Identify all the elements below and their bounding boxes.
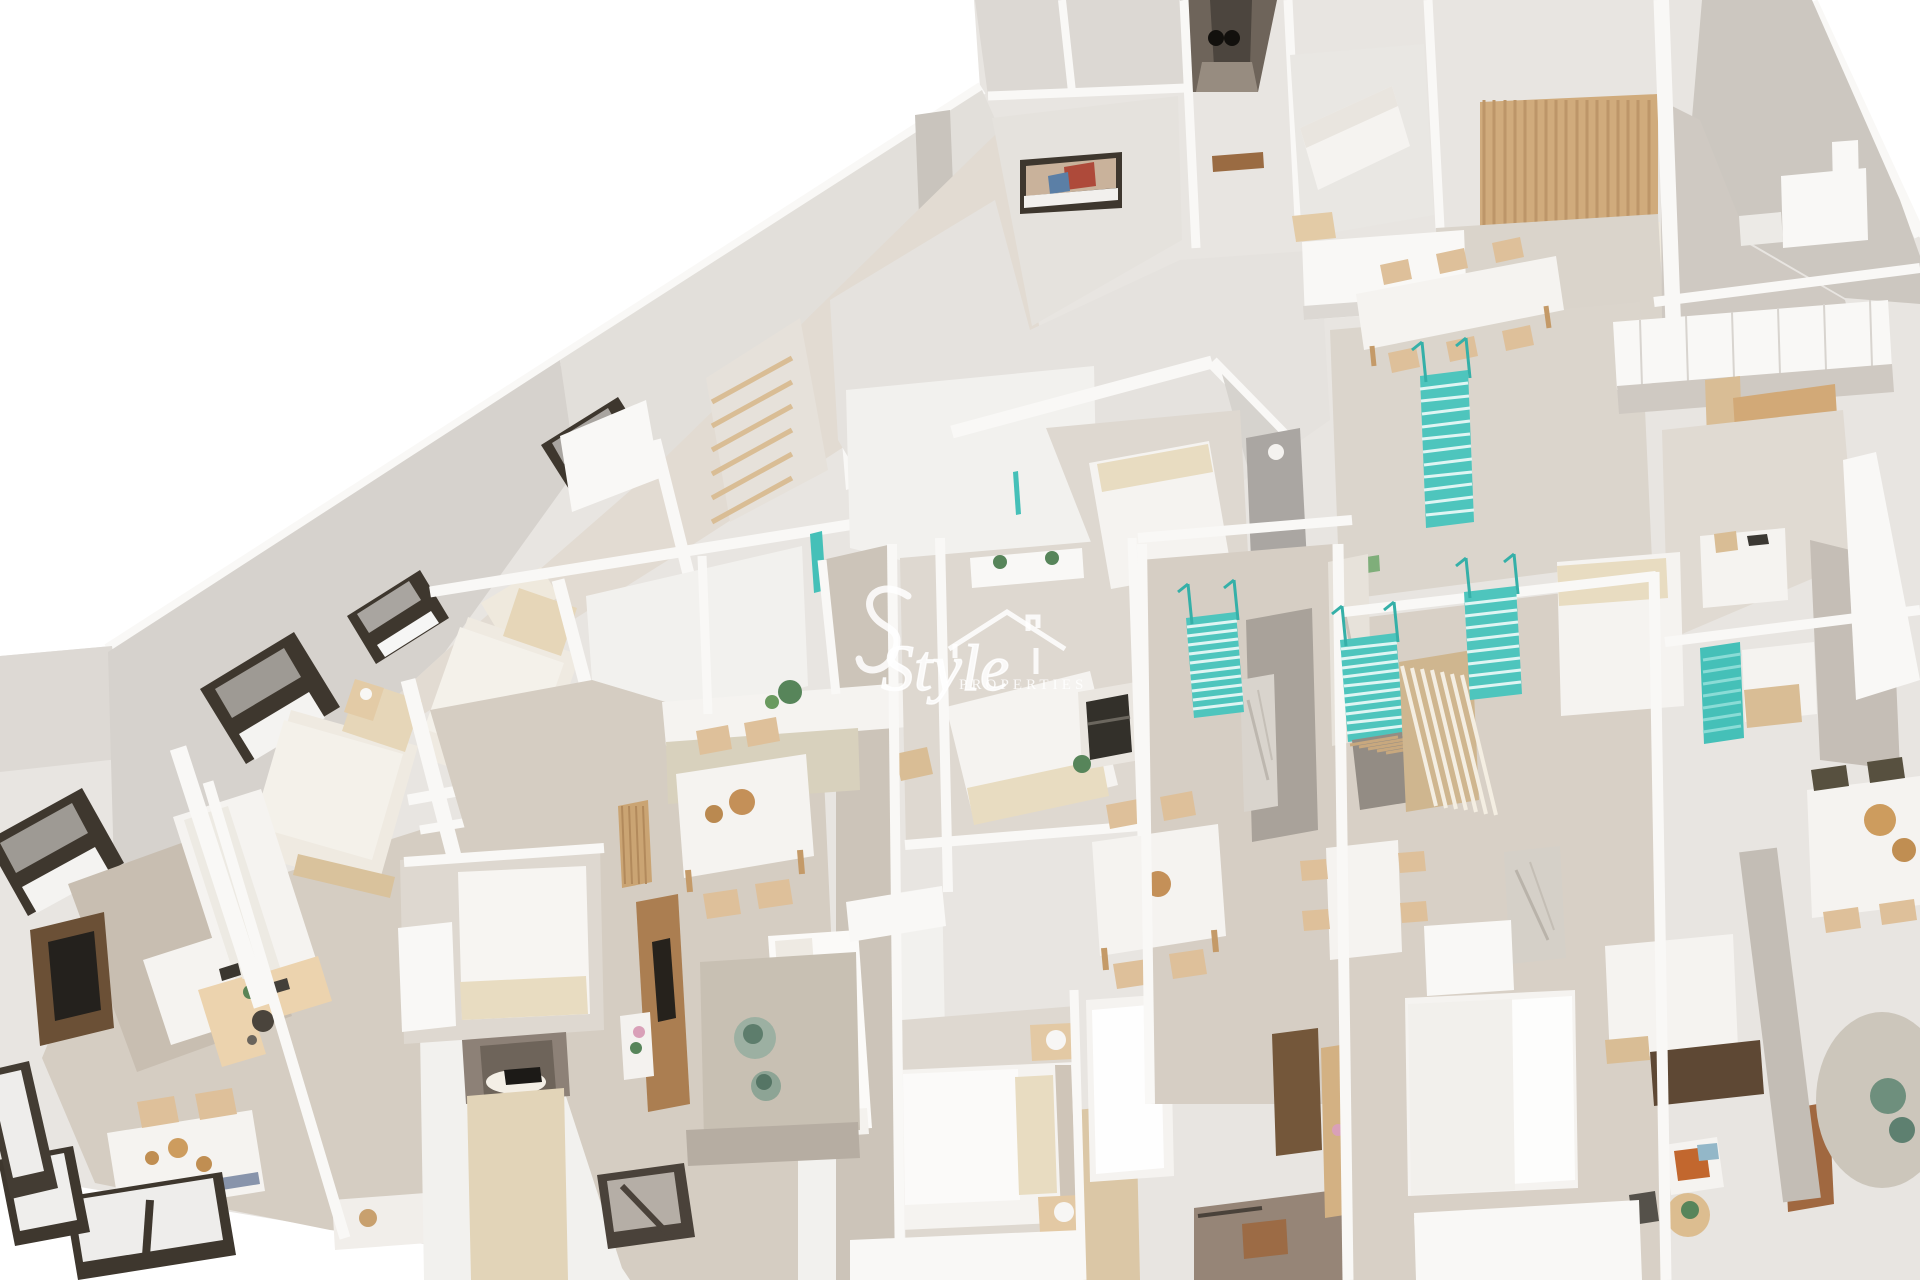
svg-text:PROPERTIES: PROPERTIES — [959, 677, 1087, 693]
svg-text:Style: Style — [881, 632, 1009, 705]
